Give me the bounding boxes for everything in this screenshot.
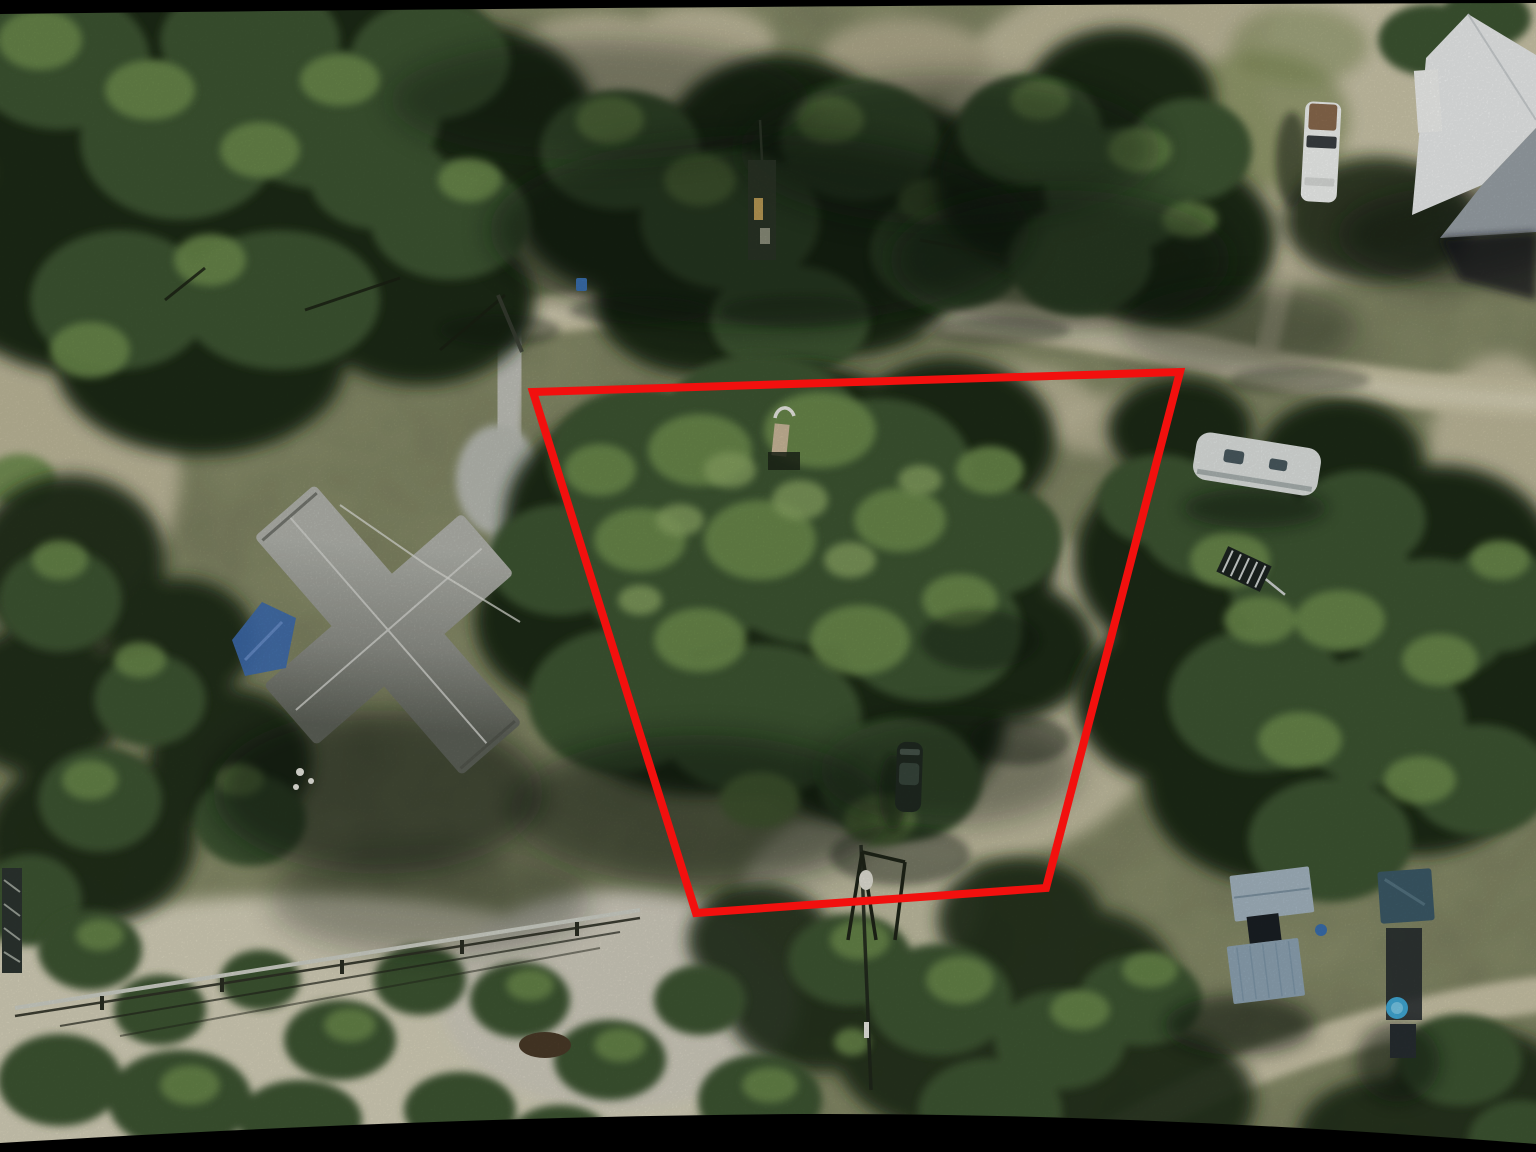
aerial-photo [0,0,1536,1152]
film-grain [0,0,1536,1152]
